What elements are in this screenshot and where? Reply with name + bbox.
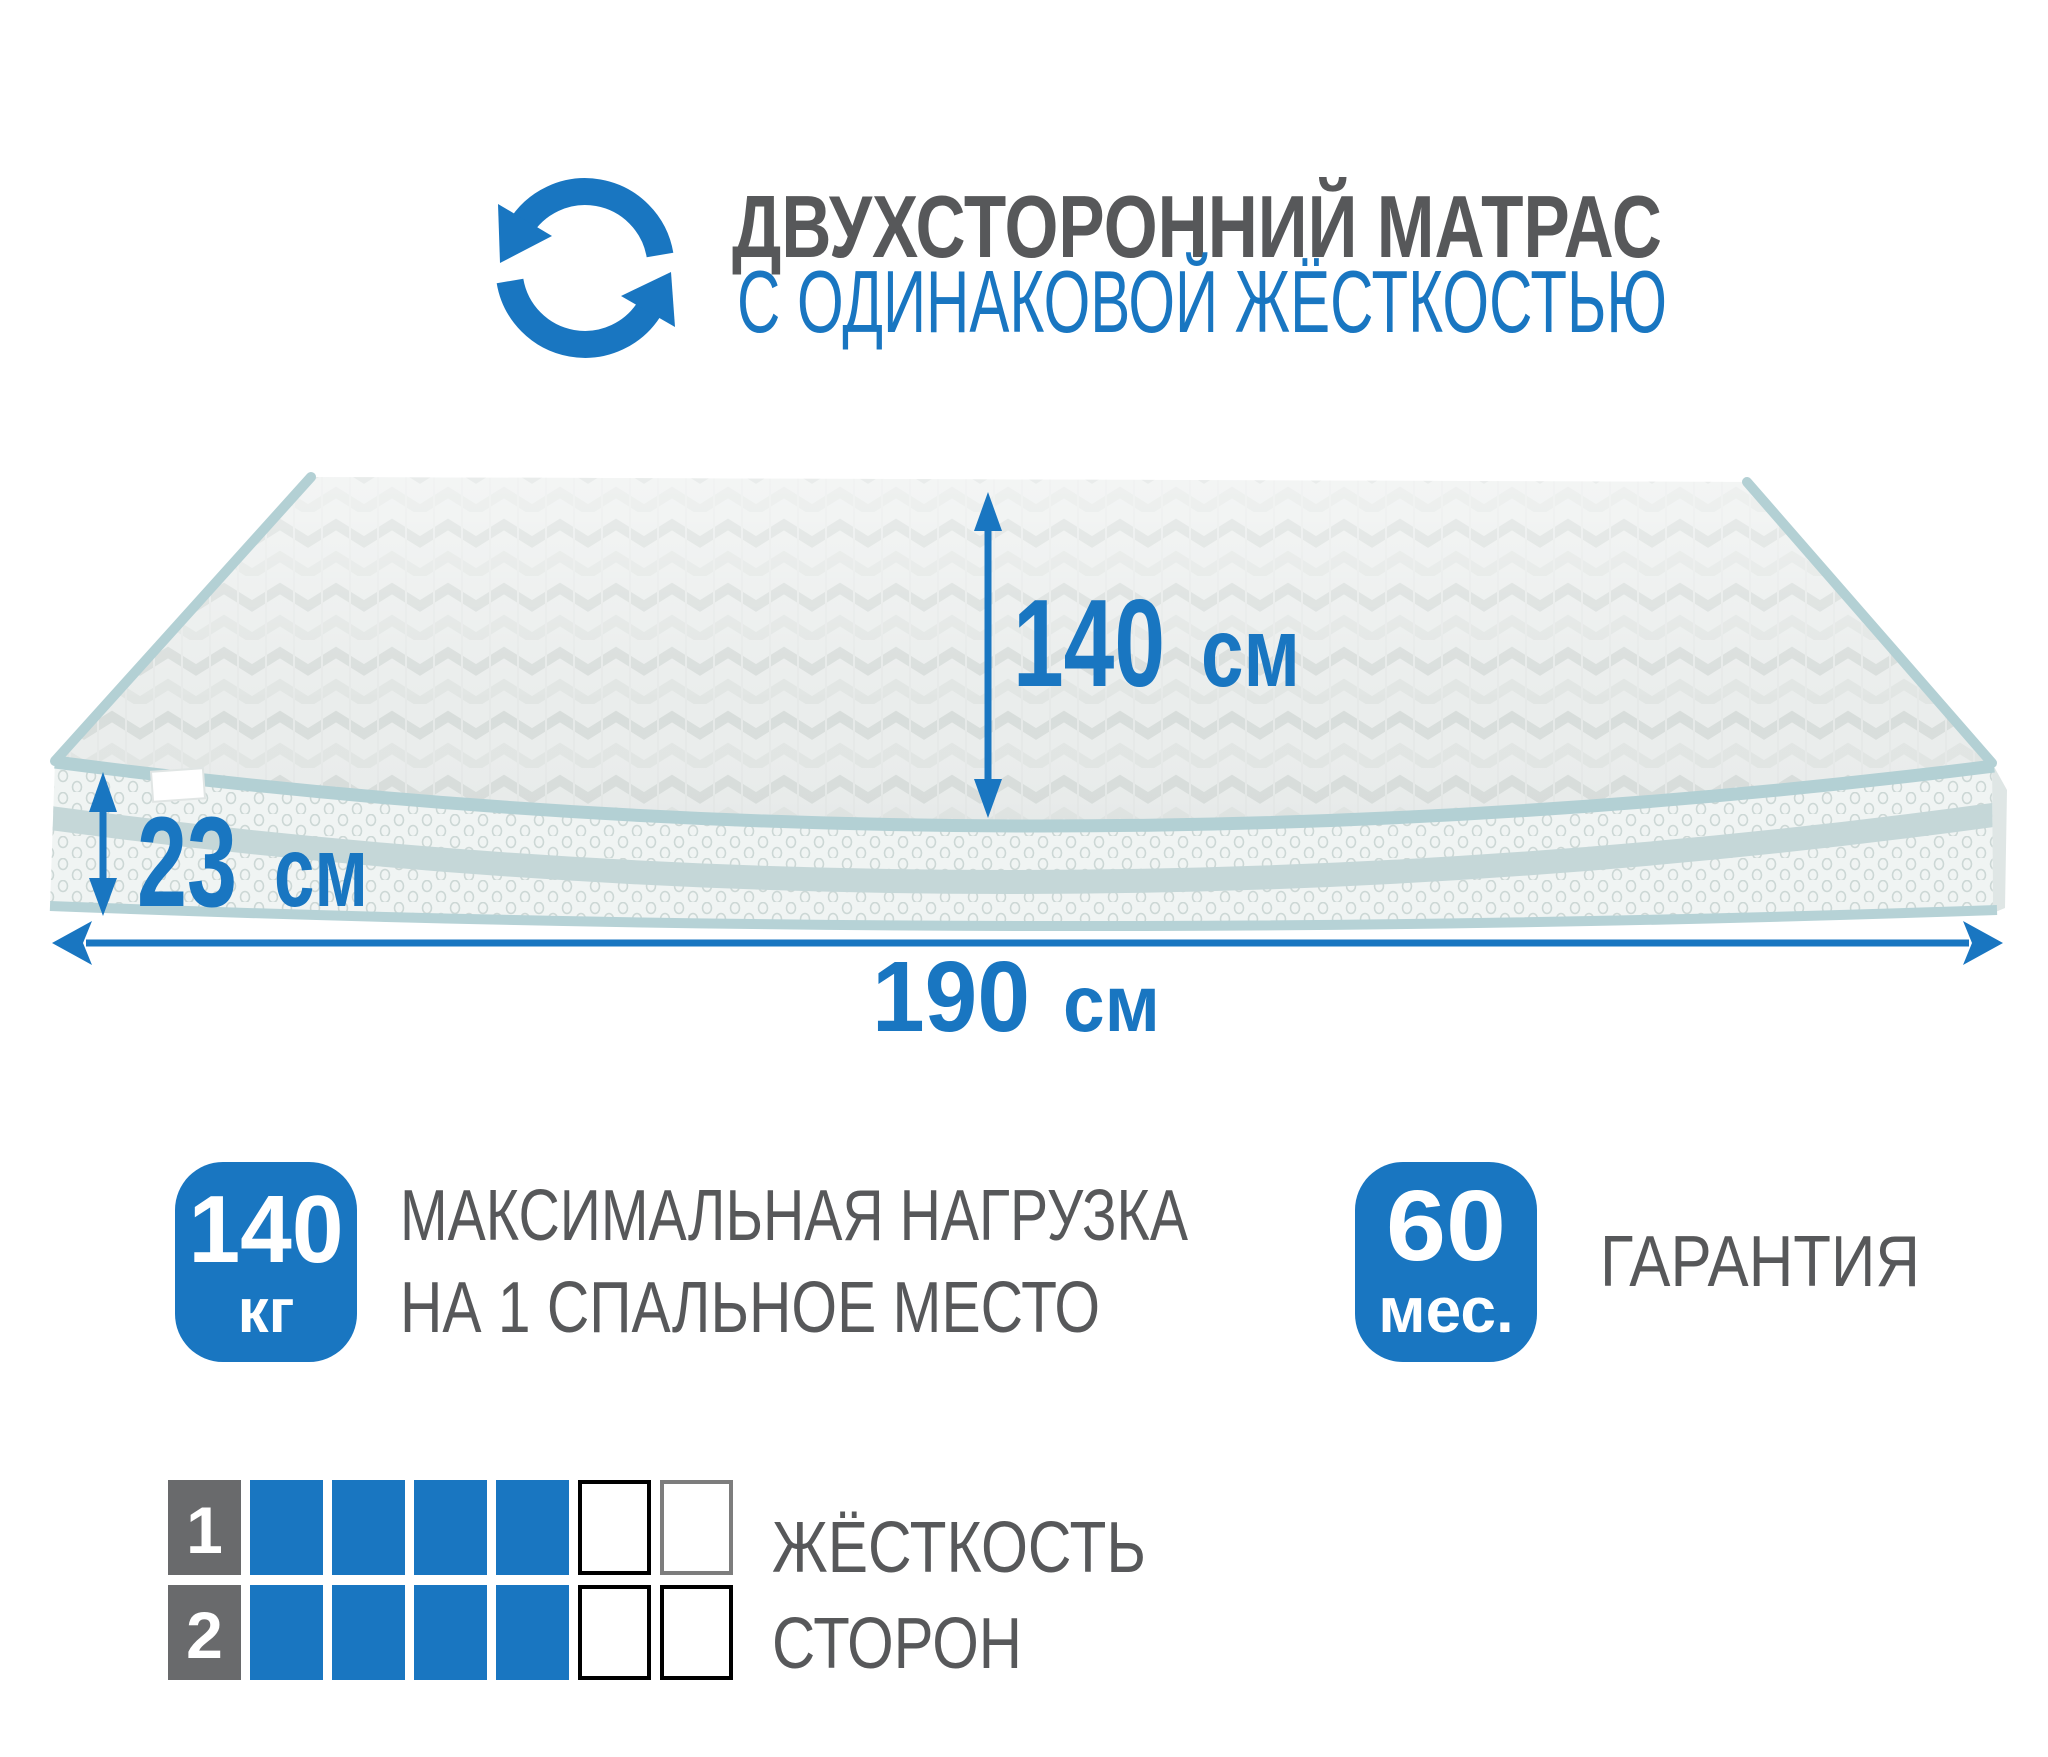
firmness-row-label: 2 — [186, 1598, 223, 1672]
firmness-square-empty — [580, 1587, 649, 1678]
firmness-square-filled — [414, 1585, 487, 1680]
page-subtitle: С ОДИНАКОВОЙ ЖЁСТКОСТЬЮ — [737, 252, 1667, 351]
firmness-row-label: 1 — [186, 1493, 223, 1567]
warranty-label: ГАРАНТИЯ — [1600, 1222, 1920, 1302]
firmness-label-line1: ЖЁСТКОСТЬ — [772, 1508, 1146, 1588]
warranty-badge: 60 мес. ГАРАНТИЯ — [1355, 1162, 1920, 1362]
firmness-square-filled — [496, 1480, 569, 1575]
max-load-label-line2: НА 1 СПАЛЬНОЕ МЕСТО — [400, 1268, 1100, 1348]
warranty-unit: мес. — [1378, 1274, 1513, 1346]
firmness-square-empty — [662, 1482, 731, 1573]
firmness-square-filled — [414, 1480, 487, 1575]
thickness-unit: см — [274, 816, 368, 928]
firmness-label-line2: СТОРОН — [772, 1604, 1022, 1684]
firmness-square-filled — [332, 1480, 405, 1575]
firmness-square-filled — [496, 1585, 569, 1680]
max-load-badge: 140 кг МАКСИМАЛЬНАЯ НАГРУЗКА НА 1 СПАЛЬН… — [175, 1162, 1188, 1362]
thickness-value: 23 — [137, 791, 237, 934]
mattress-infographic: ДВУХСТОРОННИЙ МАТРАС С ОДИНАКОВОЙ ЖЁСТКО… — [0, 0, 2048, 1757]
max-load-unit: кг — [238, 1277, 295, 1346]
infographic-canvas: ДВУХСТОРОННИЙ МАТРАС С ОДИНАКОВОЙ ЖЁСТКО… — [0, 0, 2048, 1757]
firmness-square-filled — [250, 1585, 323, 1680]
warranty-value: 60 — [1386, 1170, 1506, 1282]
firmness-square-empty — [580, 1482, 649, 1573]
surface-width-value: 140 — [1013, 575, 1165, 713]
firmness-square-filled — [332, 1585, 405, 1680]
firmness-grid: 12 — [168, 1480, 731, 1680]
max-load-label-line1: МАКСИМАЛЬНАЯ НАГРУЗКА — [400, 1176, 1188, 1256]
length-dimension: 190 см — [52, 921, 2003, 1053]
rotate-arrows-icon — [498, 192, 675, 345]
max-load-value: 140 — [189, 1176, 344, 1283]
length-unit: см — [1063, 959, 1160, 1048]
title-block: ДВУХСТОРОННИЙ МАТРАС С ОДИНАКОВОЙ ЖЁСТКО… — [498, 177, 1667, 351]
firmness-square-empty — [662, 1587, 731, 1678]
firmness-square-filled — [250, 1480, 323, 1575]
surface-width-unit: см — [1201, 597, 1300, 707]
mattress-right-face — [1992, 763, 2007, 913]
length-value: 190 — [872, 941, 1030, 1053]
